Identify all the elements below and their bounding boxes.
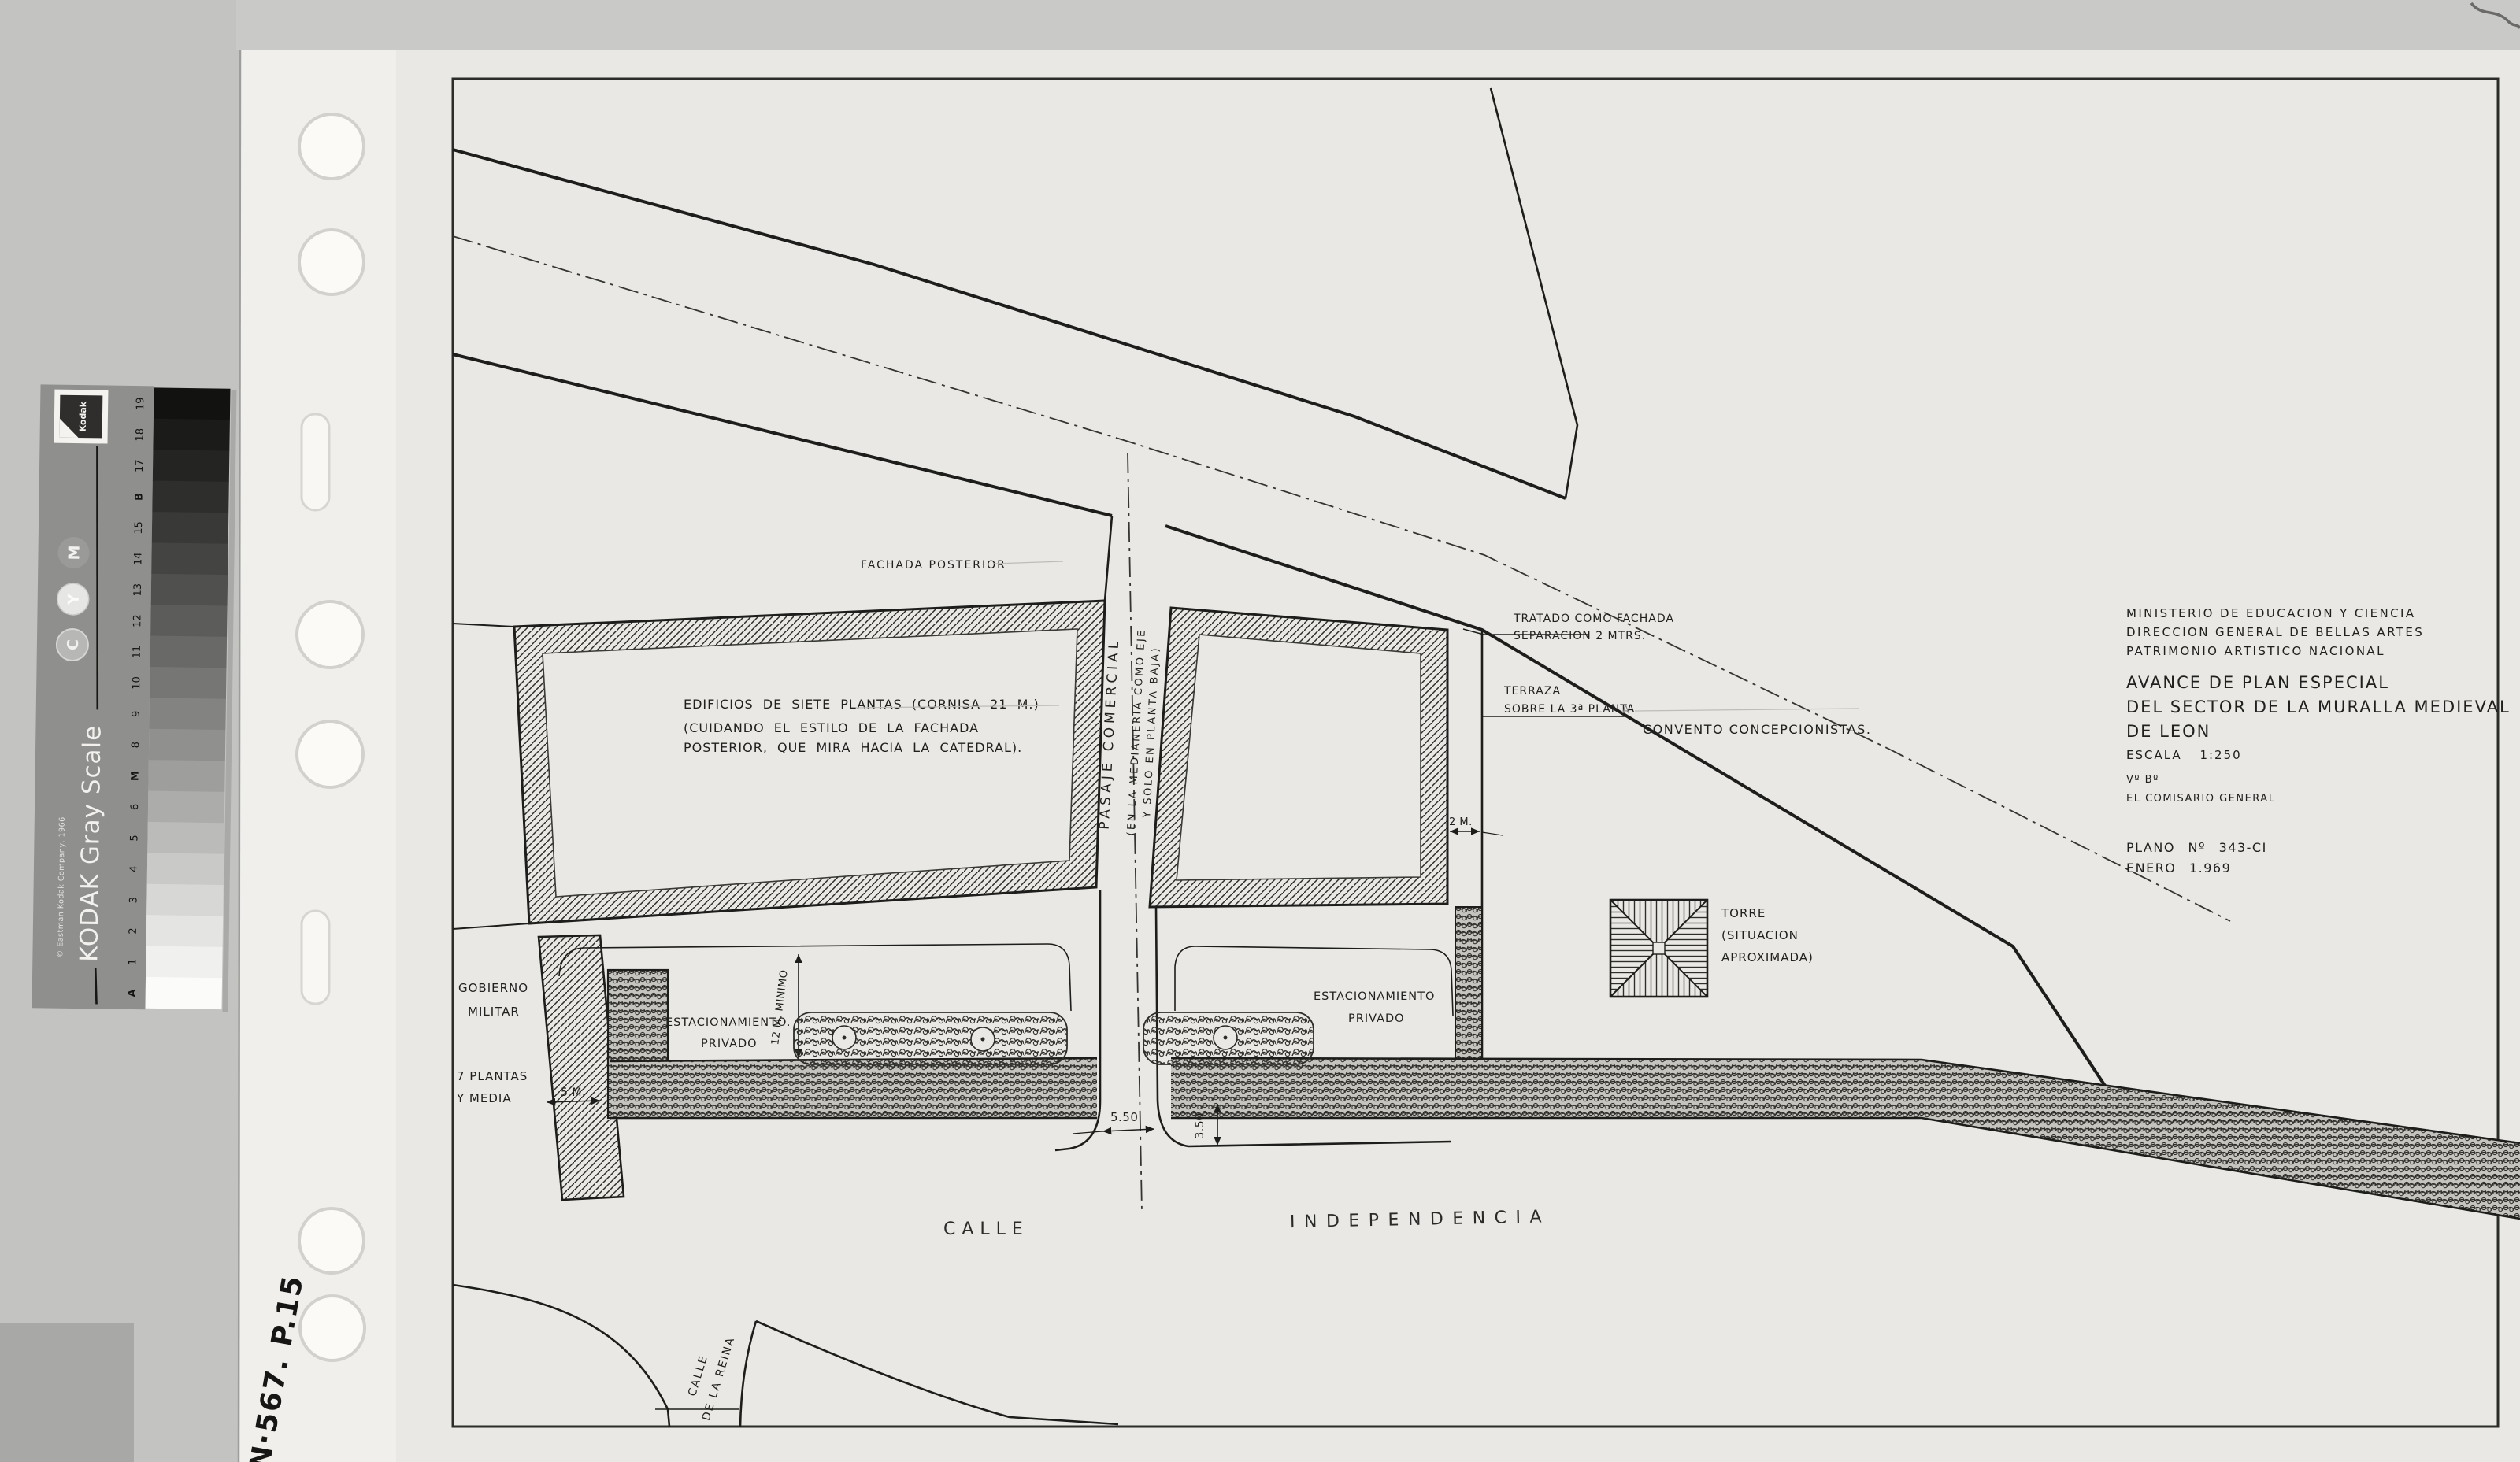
label-edificios-line1: EDIFICIOS DE SIETE PLANTAS (CORNISA 21 M… xyxy=(684,697,1039,712)
vegetation-island-right xyxy=(1143,1012,1314,1064)
gray-step-patch-14 xyxy=(151,542,228,575)
photo-shadow-bottom-left xyxy=(0,1323,134,1462)
gray-step-label-10: 10 xyxy=(131,676,143,690)
gray-step-label-3: 3 xyxy=(128,897,139,903)
tree-icon xyxy=(832,1026,856,1049)
title-plan-number: PLANO Nº 343-CI xyxy=(2126,840,2267,855)
right-building-interior xyxy=(1177,635,1421,880)
section-mark: A xyxy=(1622,705,1629,716)
punch-slot xyxy=(302,414,329,510)
gray-step-label-18: 18 xyxy=(135,428,146,442)
punch-hole xyxy=(297,721,363,787)
gray-step-label-4: 4 xyxy=(128,866,140,872)
tree-icon xyxy=(1214,1026,1237,1049)
label-terraza-line2: SOBRE LA 3ª PLANTA xyxy=(1504,703,1635,716)
title-date: ENERO 1.969 xyxy=(2126,861,2231,875)
magenta-patch-label: M xyxy=(65,545,83,560)
gray-step-label-14: 14 xyxy=(132,552,144,565)
title-line2: DEL SECTOR DE LA MURALLA MEDIEVAL xyxy=(2126,698,2511,716)
label-terraza-line1: TERRAZA xyxy=(1503,685,1561,698)
gray-step-patch-13 xyxy=(151,574,228,606)
gray-step-label-5: 5 xyxy=(128,835,140,841)
tower-center xyxy=(1653,942,1665,954)
label-edificios-line3: POSTERIOR, QUE MIRA HACIA LA CATEDRAL). xyxy=(684,740,1022,755)
gray-step-label-12: 12 xyxy=(132,614,143,627)
gray-step-label-A: A xyxy=(127,989,139,997)
right-building-block xyxy=(1150,608,1447,907)
gray-step-label-17: 17 xyxy=(134,459,146,472)
label-gobierno-line2: MILITAR xyxy=(468,1005,520,1019)
strip-brand-title: KODAK Gray Scale xyxy=(75,725,106,963)
title-line3: DE LEON xyxy=(2126,722,2211,741)
title-org-line2: DIRECCION GENERAL DE BELLAS ARTES xyxy=(2126,625,2424,639)
punch-hole xyxy=(299,1208,364,1273)
label-tratado-line2: SEPARACION 2 MTRS. xyxy=(1514,630,1646,642)
wall-band-left xyxy=(610,1058,1097,1118)
gray-step-label-8: 8 xyxy=(130,742,142,748)
title-approval: Vº Bº xyxy=(2126,774,2159,786)
gray-step-label-1: 1 xyxy=(127,959,139,965)
left-building-interior xyxy=(543,629,1077,897)
gray-step-patch-6 xyxy=(148,791,225,824)
title-line1: AVANCE DE PLAN ESPECIAL xyxy=(2126,673,2389,692)
gray-step-label-M: M xyxy=(130,771,142,781)
dim-5m-text: 5 M. xyxy=(561,1086,586,1099)
gray-step-label-19: 19 xyxy=(135,397,146,410)
dim-550-text: 5.50 xyxy=(1110,1110,1138,1124)
gray-step-patch-5 xyxy=(147,822,224,854)
punch-hole xyxy=(297,601,363,668)
gray-step-label-2: 2 xyxy=(128,927,139,934)
gray-step-patch-19 xyxy=(154,387,231,420)
kodak-logo-text: Kodak xyxy=(78,401,89,431)
street-label-calle: CALLE xyxy=(943,1220,1029,1239)
dim-350-text: 3.50 xyxy=(1194,1112,1206,1138)
title-approver: EL COMISARIO GENERAL xyxy=(2126,793,2275,805)
punch-slot xyxy=(302,911,329,1004)
label-plantas-line1: 7 PLANTAS xyxy=(457,1069,528,1083)
gray-step-patch-15 xyxy=(152,512,229,544)
gray-step-patch-18 xyxy=(153,419,230,451)
label-plantas-line2: Y MEDIA xyxy=(456,1091,512,1105)
vegetation-island-left xyxy=(794,1012,1067,1064)
gray-step-label-13: 13 xyxy=(132,583,144,597)
punch-hole xyxy=(300,1296,365,1360)
label-estacionamiento-left-line2: PRIVADO xyxy=(701,1038,758,1050)
kodak-logo-icon: Kodak xyxy=(54,390,108,444)
gray-step-label-B: B xyxy=(133,493,145,501)
label-torre-line1: TORRE xyxy=(1721,906,1766,920)
dim-2m-text: 2 M. xyxy=(1449,816,1473,828)
gray-step-patch-17 xyxy=(153,450,230,482)
kodak-gray-scale-strip: 191817B15141312111098M654321A Kodak M Y … xyxy=(31,384,236,1012)
label-fachada-posterior: FACHADA POSTERIOR xyxy=(861,559,1006,572)
label-tratado-line1: TRATADO COMO FACHADA xyxy=(1513,613,1674,625)
title-scale: ESCALA 1:250 xyxy=(2126,748,2242,762)
gray-step-patch-9 xyxy=(149,698,226,730)
cyan-patch-label: C xyxy=(65,639,82,650)
gray-step-patch-8 xyxy=(149,729,226,761)
label-convento: CONVENTO CONCEPCIONISTAS. xyxy=(1643,722,1871,737)
label-edificios-line2: (CUIDANDO EL ESTILO DE LA FACHADA xyxy=(684,720,979,735)
gray-step-label-6: 6 xyxy=(129,804,141,810)
label-gobierno-line1: GOBIERNO xyxy=(458,981,528,995)
gray-step-patch-10 xyxy=(150,667,227,699)
gray-step-label-9: 9 xyxy=(131,711,143,717)
title-org-line3: PATRIMONIO ARTISTICO NACIONAL xyxy=(2126,644,2385,658)
punch-hole xyxy=(299,114,364,179)
gray-step-patch-3 xyxy=(146,884,224,916)
punch-hole xyxy=(299,230,364,294)
gray-step-patch-2 xyxy=(146,915,224,947)
gray-step-patch-A xyxy=(145,977,222,1009)
label-torre-line3: APROXIMADA) xyxy=(1721,950,1814,964)
gray-step-patch-1 xyxy=(146,946,223,979)
yellow-patch-label: Y xyxy=(65,594,83,605)
gray-step-label-11: 11 xyxy=(132,646,143,659)
cmy-patches: M Y C xyxy=(57,537,90,661)
label-estacionamiento-right-line1: ESTACIONAMIENTO xyxy=(1314,990,1435,1003)
gray-step-patch-M xyxy=(148,760,225,792)
gray-step-label-15: 15 xyxy=(133,521,145,535)
gray-step-patch-4 xyxy=(147,853,224,885)
label-estacionamiento-right-line2: PRIVADO xyxy=(1348,1012,1405,1025)
title-org-line1: MINISTERIO DE EDUCACION Y CIENCIA xyxy=(2126,606,2415,620)
gray-step-patch-11 xyxy=(150,636,228,668)
tower-symbol xyxy=(1610,900,1707,997)
label-torre-line2: (SITUACION xyxy=(1721,928,1799,942)
gray-step-patch-B xyxy=(152,481,229,513)
tree-icon xyxy=(971,1027,995,1051)
photo-background-top xyxy=(236,0,2520,50)
gray-step-patch-12 xyxy=(150,605,228,637)
